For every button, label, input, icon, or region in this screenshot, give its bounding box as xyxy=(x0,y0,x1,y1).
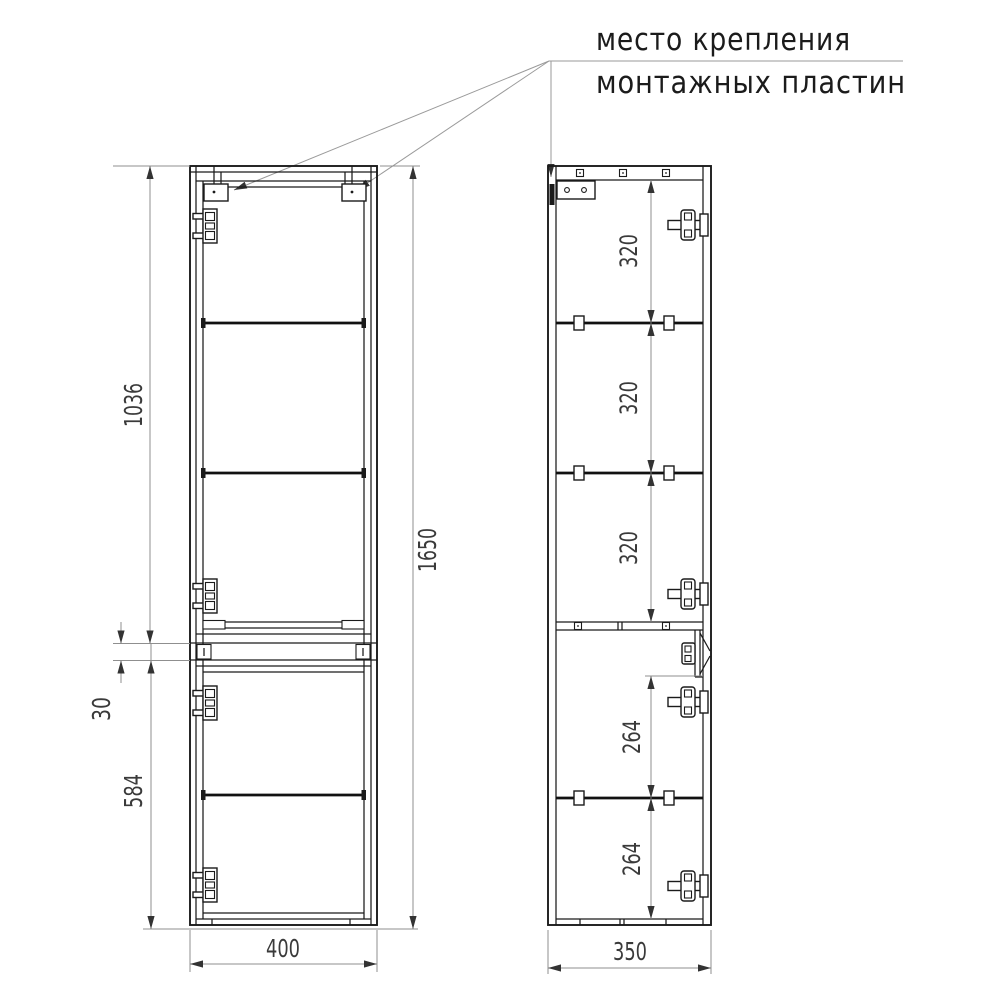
mounting-plate-front-right xyxy=(342,184,366,201)
divider-bracket xyxy=(682,630,710,677)
side-divider xyxy=(556,622,703,630)
dim-gap-label: 30 xyxy=(87,697,116,721)
dim-width-label: 400 xyxy=(266,934,300,963)
front-divider xyxy=(190,621,377,673)
mounting-plate-front-left xyxy=(204,184,228,201)
annotation-line-1: место крепления xyxy=(596,22,851,58)
front-dimensions: 1036 30 584 1650 400 xyxy=(87,166,442,972)
annotation-block: место крепления монтажных пластин xyxy=(234,22,906,190)
side-dimensions: 320 320 320 264 264 350 xyxy=(548,180,711,974)
annotation-line-2: монтажных пластин xyxy=(596,65,906,101)
dim-section-4-label: 264 xyxy=(618,720,646,754)
dim-depth-label: 350 xyxy=(613,937,647,966)
dim-lower-height-label: 584 xyxy=(119,774,148,808)
dim-upper-height-label: 1036 xyxy=(119,383,148,427)
mounting-plate-side xyxy=(557,181,595,199)
leader-lines xyxy=(234,61,551,190)
dim-section-5-label: 264 xyxy=(618,842,646,876)
dim-section-1-label: 320 xyxy=(615,234,643,268)
technical-drawing-page: место крепления монтажных пластин xyxy=(0,0,1000,1000)
cabinet-drawing: место крепления монтажных пластин xyxy=(0,0,1000,1000)
dim-section-2-label: 320 xyxy=(615,381,643,415)
front-view xyxy=(190,166,377,925)
front-shelves xyxy=(201,318,366,800)
dim-total-height-label: 1650 xyxy=(413,528,442,572)
dim-section-3-label: 320 xyxy=(615,531,643,565)
